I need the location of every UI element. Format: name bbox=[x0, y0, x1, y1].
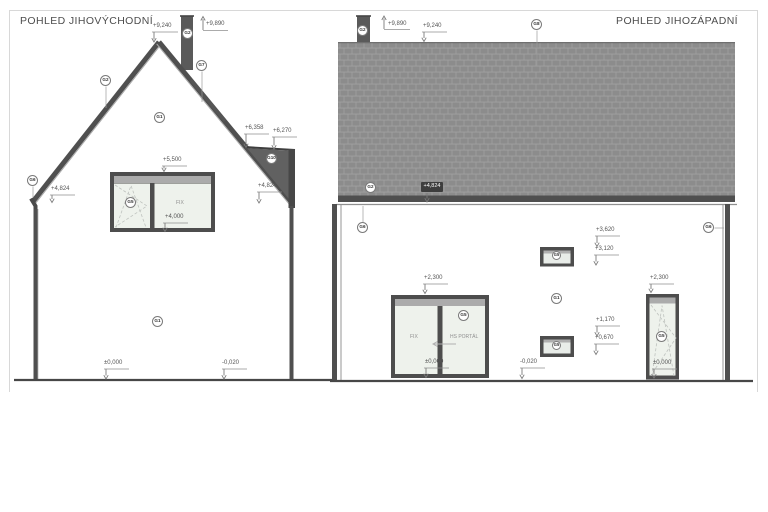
elevation-terrain-sw: -0,020 bbox=[520, 359, 537, 366]
door-fix-label: FIX bbox=[410, 334, 418, 341]
window-fix-label: FIX bbox=[176, 200, 184, 207]
tag-g1-wall-sw: G1 bbox=[551, 293, 562, 304]
elevation-annex-eave: +4,824 bbox=[258, 183, 277, 190]
elevation-ridge-se: +9,240 bbox=[153, 23, 172, 30]
tag-g7: G7 bbox=[196, 60, 207, 71]
tag-g2-roof-se: G2 bbox=[100, 75, 111, 86]
tag-g6-se: G6 bbox=[27, 175, 38, 186]
elevation-drawing-sheet: POHLED JIHOVÝCHODNÍ POHLED JIHOZÁPADNÍ +… bbox=[0, 0, 768, 512]
view-title-southeast: POHLED JIHOVÝCHODNÍ bbox=[20, 15, 153, 27]
tag-g1-wall-se: G1 bbox=[152, 316, 163, 327]
tag-g5-lower-window: G5 bbox=[552, 341, 561, 350]
chimney bbox=[181, 16, 193, 70]
tag-g6-sw-left: G6 bbox=[357, 222, 368, 233]
tag-g2-roof-sw: G2 bbox=[365, 182, 376, 193]
drawing-linework bbox=[0, 0, 768, 512]
elevation-annex-top-left: +6,358 bbox=[245, 125, 264, 132]
elevation-upper-window-sill: +3,120 bbox=[595, 246, 614, 253]
tag-g2-chimney-sw: G2 bbox=[357, 25, 368, 36]
view-title-southwest: POHLED JIHOZÁPADNÍ bbox=[616, 15, 738, 27]
elevation-window-sill: +4,000 bbox=[165, 214, 184, 221]
tag-g5-window-se: G5 bbox=[125, 197, 136, 208]
fascia bbox=[338, 196, 735, 203]
elevation-eave-badge: +4,824 bbox=[421, 182, 443, 192]
tag-g10-annex: G10 bbox=[266, 153, 277, 164]
elevation-lower-window-sill: +0,670 bbox=[595, 335, 614, 342]
elevation-window-head: +5,500 bbox=[163, 157, 182, 164]
tag-g5-upper-window: G5 bbox=[552, 251, 561, 260]
elevation-ridge-sw: +9,240 bbox=[423, 23, 442, 30]
elevation-door-floor: ±0,000 bbox=[425, 359, 443, 366]
tag-g5-tall-window: G5 bbox=[656, 331, 667, 342]
southwest-house bbox=[330, 16, 753, 381]
elevation-tall-window-head: +2,300 bbox=[650, 275, 669, 282]
elevation-upper-window-head: +3,620 bbox=[596, 227, 615, 234]
door-sliding-label: HS PORTÁL bbox=[450, 334, 478, 341]
roof-tiles bbox=[338, 42, 735, 196]
elevation-floor-se: ±0,000 bbox=[104, 360, 122, 367]
elevation-annex-top-right: +6,270 bbox=[273, 128, 292, 135]
tag-g6-sw-right: G6 bbox=[703, 222, 714, 233]
downspout-left bbox=[332, 204, 337, 381]
elevation-chimney-sw: +9,890 bbox=[388, 21, 407, 28]
tag-g2-chimney-se: G2 bbox=[182, 28, 193, 39]
elevation-terrain-se: -0,020 bbox=[222, 360, 239, 367]
downspout-left bbox=[34, 209, 38, 381]
elevation-eave-se: +4,824 bbox=[51, 186, 70, 193]
roof-edge-bar bbox=[191, 80, 225, 121]
downspout-right bbox=[725, 204, 730, 381]
elevation-door-head: +2,300 bbox=[424, 275, 443, 282]
tag-g1-gable: G1 bbox=[154, 112, 165, 123]
elevation-chimney-se: +9,890 bbox=[206, 21, 225, 28]
elevation-lower-window-head: +1,170 bbox=[596, 317, 615, 324]
tag-g5-door: G5 bbox=[458, 310, 469, 321]
tag-g8-roof: G8 bbox=[531, 19, 542, 30]
downspout-right bbox=[290, 206, 294, 381]
southeast-house bbox=[14, 16, 333, 381]
elevation-tall-window-floor: ±0,000 bbox=[653, 360, 671, 367]
